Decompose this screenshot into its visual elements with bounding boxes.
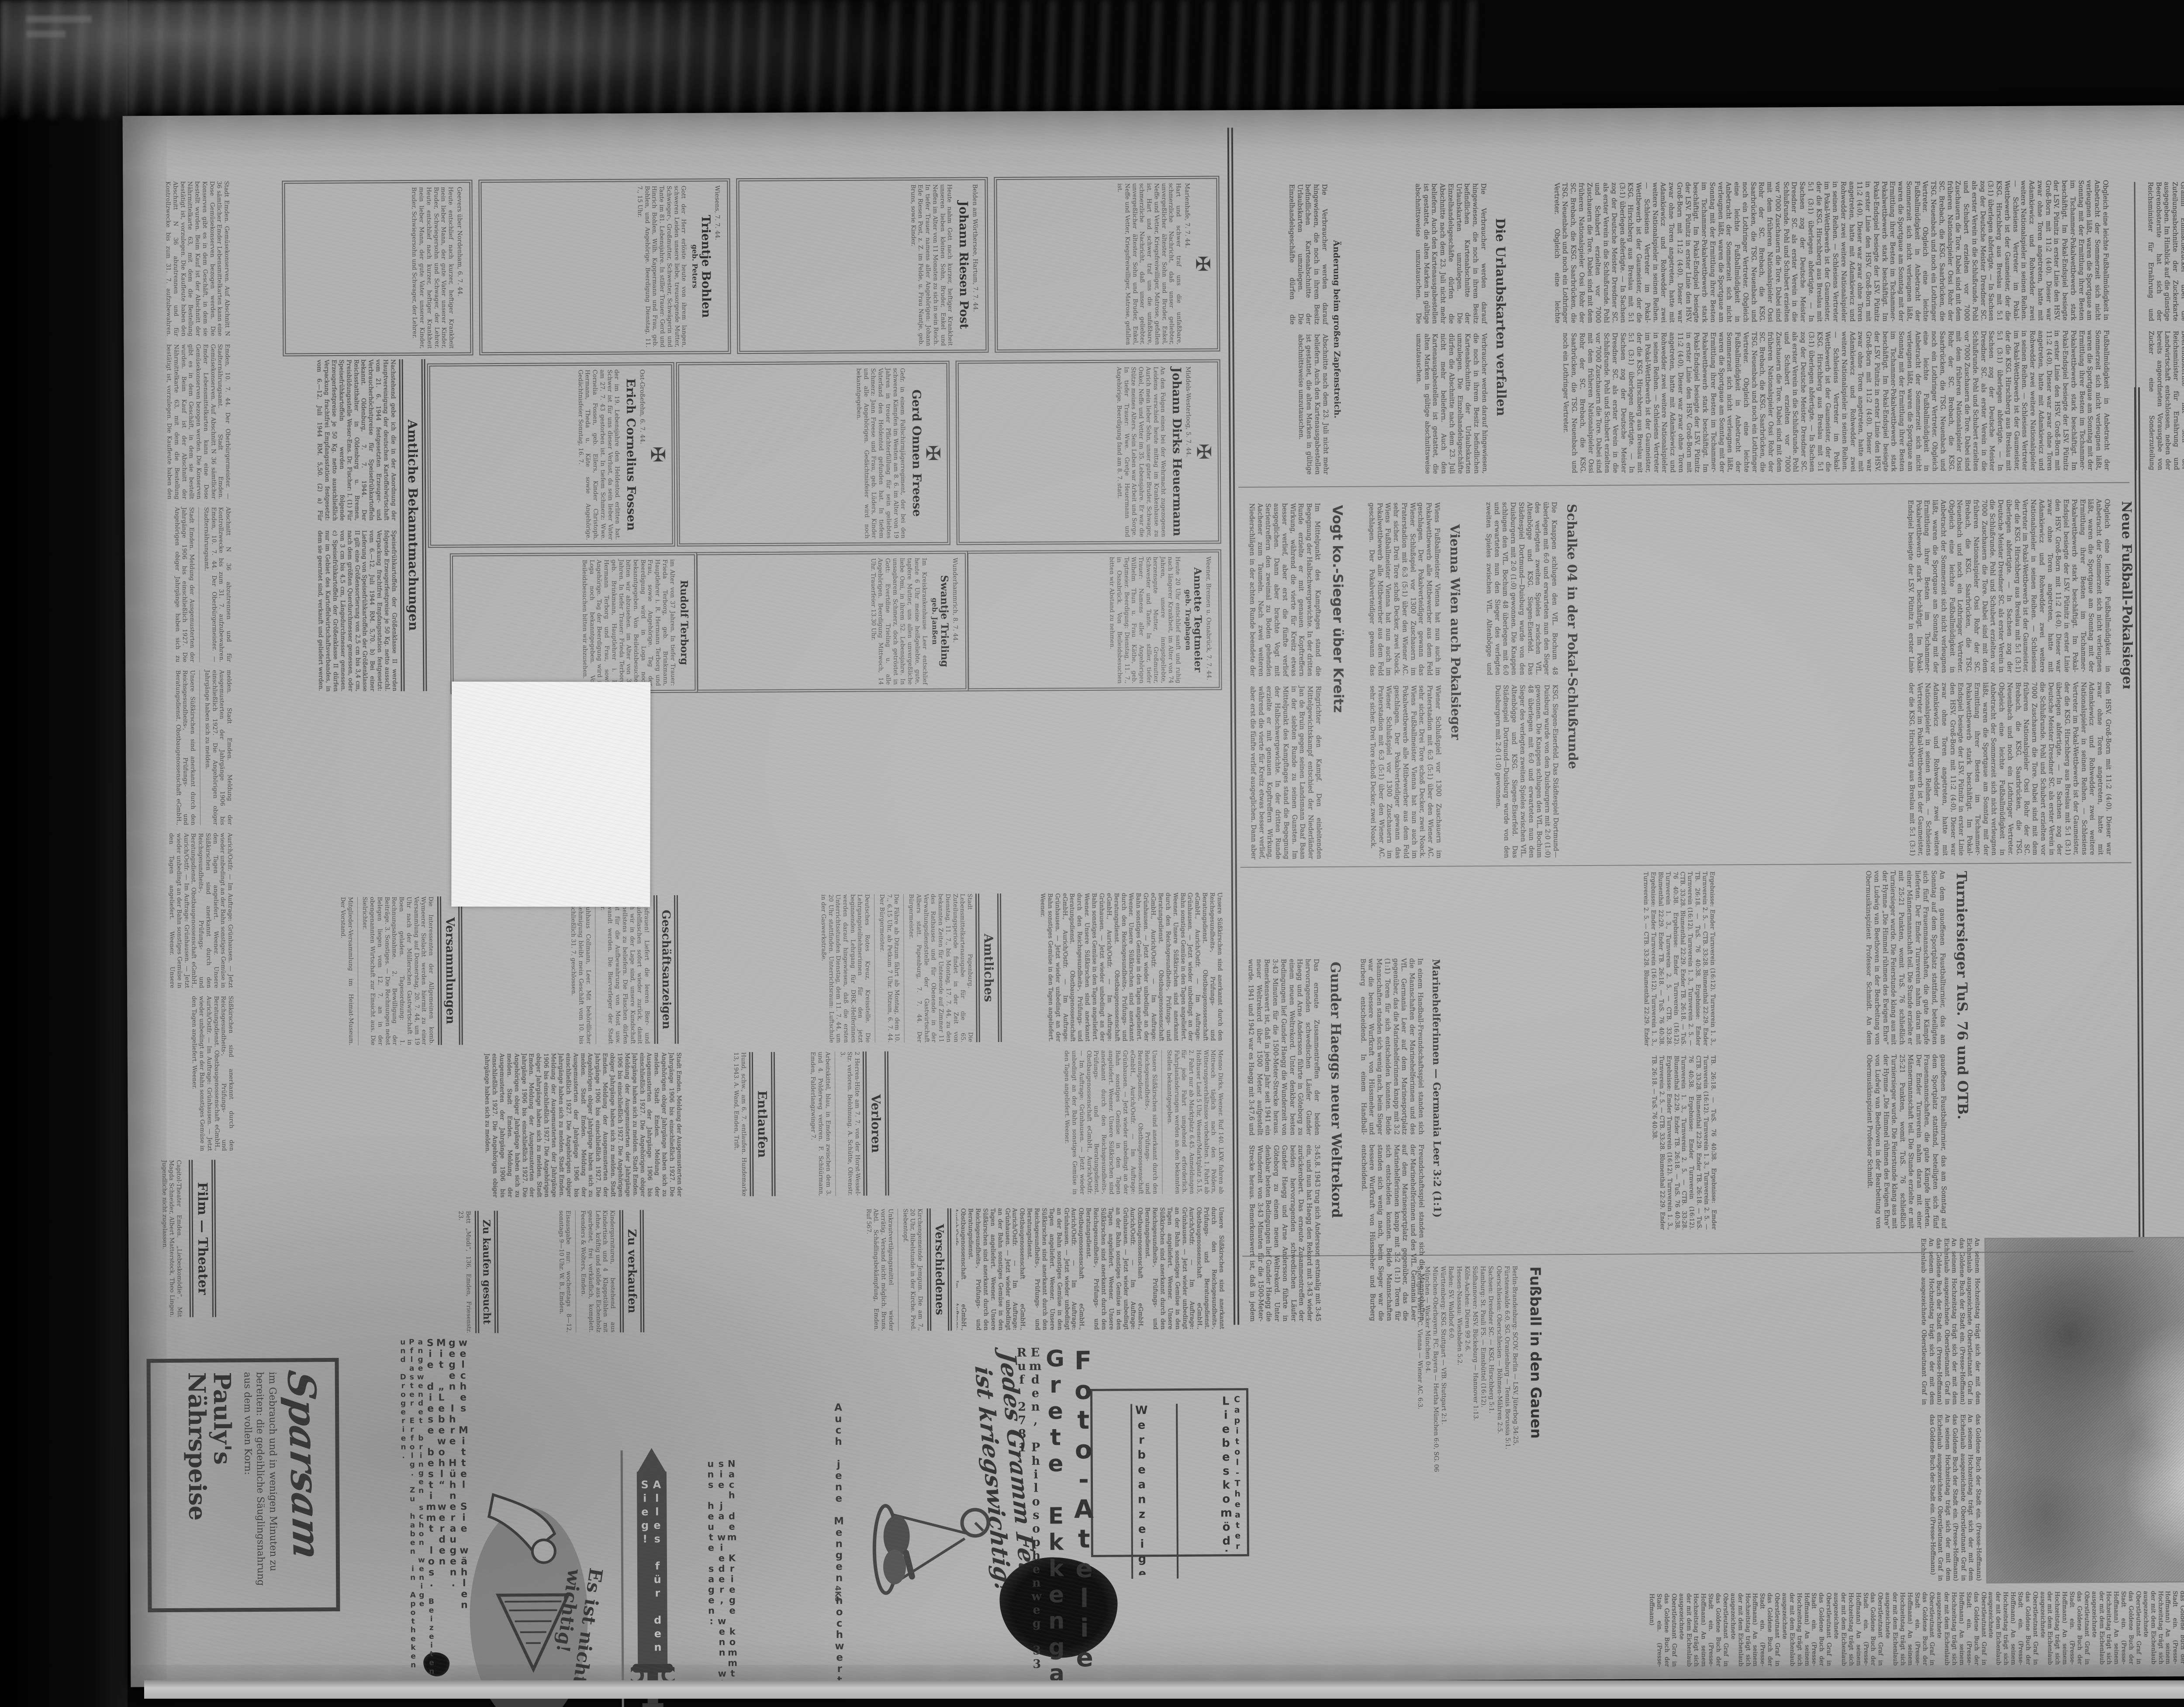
result-line: Württemberg: KSG. Stuttgart — VfB. Stutt… <box>1439 1266 1448 1487</box>
wedding-caption: An seinem Hochzeitstag trägt sich der mi… <box>1911 1238 1982 1581</box>
headline-vienna: Vienna Wien auch Pokalsieger <box>1448 524 1464 786</box>
headline-schalke: Schalke 04 in der Pokal-Schlußrunde <box>1564 504 1580 783</box>
death-notice: Geevers über Nordenham, 6. 7. 44. Heute … <box>282 180 473 356</box>
official-announcements: Amtliche Bekanntmachungen Nachstehend ge… <box>233 359 427 692</box>
scanned-newspaper-screenshot: Fünfhundert Gramm Einmachezucker Im Hinb… <box>0 0 2184 1707</box>
headline-neue-pokalsieger: Neue Fußball-Pokalsieger <box>2118 501 2135 689</box>
ad-capitol-line2: Liebeskomödie <box>1219 1395 1233 1553</box>
classified-entry: Schuhhaus Collmann, Leer. Mit behördlich… <box>570 896 596 1044</box>
classified-entry: 2 Herren-Hüte am 7. 7. von der Horst-Wes… <box>839 1052 861 1196</box>
section-geschaefts-entries: Hausfrauen! Liefert die leeren Bier- und… <box>467 895 651 1045</box>
notice-name: Gerd Onnen Freese <box>909 368 923 538</box>
result-line: Hessen-Nassau: Wiesbaden 5:2. <box>1455 1266 1464 1487</box>
ad-rule <box>621 1451 625 1707</box>
section-header-amtliches: Amtliches <box>975 893 1002 1042</box>
ad-fett-subline: Auch jene Mengen hochwert. <box>821 1402 846 1704</box>
classified-entry: Kirchengemeinde Jemgum. Die am 7., 20 Uh… <box>902 1208 924 1331</box>
notice-place: Wunderhammrich, 8. 7. 44. <box>951 558 959 685</box>
notice-text: An den Folgen eines bei der Wehrmacht zu… <box>1115 367 1167 537</box>
ad-foto-atelier: Foto-Atelier Grete Ekkenga Emden, Philos… <box>1010 1346 1099 1707</box>
notice-name: Johann Dirks Heuermann <box>1170 367 1184 537</box>
death-notice: ✠ Ost-Großefehn, 6. 7. 44. Erich Corneli… <box>427 362 675 548</box>
notice-text: im Alter von 37 Jahren. In tiefer Trauer… <box>581 559 676 686</box>
ad-foto-line2: Grete Ekkenga <box>1042 1346 1070 1686</box>
result-line: Köln-Aachen: Düren 99 2:6. <box>1463 1266 1472 1486</box>
scanner-light-streaks <box>0 0 1485 118</box>
results-gauen: Berlin-Brandenburg: SCOV. Berlin — LSV. … <box>1245 1266 1520 1488</box>
newspaper-sheet: Fünfhundert Gramm Einmachezucker Im Hinb… <box>123 104 2184 1687</box>
classified-entry: Arbeitskittel, blau, in Emden zwischen d… <box>809 1052 836 1196</box>
section-versammlungen-entries: Die Interessenten der Allgemeinen komb. … <box>242 897 435 1046</box>
results-turner: Ergebnisse: Emder Turnverein (16:12). Tu… <box>1572 871 1717 1230</box>
hanging-scale-illustration <box>844 1496 1002 1598</box>
film-edge-mark <box>26 31 66 38</box>
body-neue-pokalsieger: Obgleich eine leichte Fußballmüdigkeit i… <box>1906 499 2113 856</box>
notice-place: Marienhafe, 7. 7. 44. <box>1183 183 1191 345</box>
section-header-verloren: Verloren <box>863 1051 889 1195</box>
ad-capitol-line1: Capitol-Theater, Emden <box>1232 1395 1243 1553</box>
notice-text: Heute entschlief nach kurzer, heftiger K… <box>410 187 455 349</box>
section-header-entlaufen: Entlaufen <box>749 1052 776 1196</box>
banner-rule <box>2134 387 2145 1318</box>
section-film-entries: Capitol-Theater Emden. „Liebeskomödie“. … <box>132 1160 183 1318</box>
notice-name: Trientje Bohlen <box>699 185 713 347</box>
classified-entry: Eisausgabe nur: wochentags 8—12, sonntag… <box>557 1210 577 1333</box>
notice-subname: geb. Peters <box>691 186 700 347</box>
article-einmachezucker: Fünfhundert Gramm Einmachezucker Im Hinb… <box>2134 181 2184 471</box>
headline-fussball-gauen: Fußball in den Gauen <box>1527 1267 1545 1481</box>
classified-entry: Bett „Mudi“, 136, Emden, Friesenstr. 23. <box>457 1211 472 1333</box>
section-header-zu-kaufen-gesucht: Zu kaufen gesucht <box>475 1211 498 1333</box>
ad-sparsam: Sparsam im Gebrauch und in wenigen Minut… <box>147 1358 340 1612</box>
section-header-geschaeftsanzeigen: Geschäftsanzeigen <box>653 895 679 1044</box>
result-line: Baden: SV. Waldhof 6:0. <box>1447 1266 1456 1487</box>
white-paper-patch <box>451 682 650 907</box>
section-amtliches-entries: Stadt Papenburg. Die Lebensmittelkartena… <box>683 893 974 1043</box>
section-banner: Sportdienst der OTZ <box>2145 493 2184 1320</box>
body-urlaubskarten-cont: Die Verbraucher werden darauf hingewiese… <box>1254 184 1330 475</box>
classified-col3-top: Unsere Süßkirschen sind anerkannt durch … <box>956 1207 1225 1330</box>
headline-urlaubskarten: Die Urlaubskarten verfallen <box>1493 218 1509 436</box>
article-urlaubskarten: Die Verbraucher werden darauf hingewiese… <box>1243 183 1489 475</box>
ad-foto-line3: Emden, Philosophenweg 33 <box>1028 1346 1044 1671</box>
ad-capitol-theater: Capitol-Theater, Emden Liebeskomödie <box>1090 1388 1249 1557</box>
section-verloren-entries: 2 Herren-Hüte am 7. 7. von der Horst-Wes… <box>780 1052 861 1196</box>
death-notice: ✠ Marienhafe, 7. 7. 44. Hart und schwer … <box>994 176 1220 353</box>
next-page-edge <box>144 1680 2184 1699</box>
notice-place: Belden am Wörthersee, Hartum, 7. 7. 44. <box>971 184 979 346</box>
notice-subname: geb. Janßen <box>930 558 940 685</box>
result-line: Sportgau Wien: FC. Vienna — Wiener AC. 6… <box>1415 1266 1424 1487</box>
section-header-verschiedenes: Verschiedenes <box>927 1208 952 1331</box>
body-urlaubskarten: Die Verbraucher werden darauf hingewiese… <box>1343 183 1489 474</box>
ad-sparsam-script: Sparsam <box>279 1368 331 1602</box>
notice-name: Erich Cornelius Fossen <box>624 369 638 540</box>
column-rule <box>1238 482 2129 488</box>
death-notice: Wiesens, 7. 7. 44. Trientje Bohlen geb. … <box>478 178 731 355</box>
classified-entry: Deutsches Rotes Kreuz, Kreisstelle. Die … <box>819 894 875 1043</box>
notice-text: Heute nahm Gott nach kurzer, heftiger Kr… <box>909 184 954 346</box>
result-line: Südhannover: MSV. Bückeburg — Hannover 1… <box>1471 1266 1480 1486</box>
classified-entry: Hausfrauen! Liefert die leeren Bier- und… <box>599 895 651 1044</box>
notice-place: Geevers über Nordenham, 6. 7. 44. <box>456 187 463 348</box>
ad-alles-fuer-den-sieg: Es ist nicht wichtig! Alles für den Sieg… <box>467 1423 858 1707</box>
section-header-film-theater: Film — Theater <box>189 1160 216 1317</box>
body-vienna: Wiens Fußballmeister Vienna hat nun auch… <box>1348 502 1443 859</box>
notice-name: Rudolf Terborg <box>678 559 690 686</box>
ad-sparsam-body: im Gebrauch und in wenigen Minuten zu be… <box>241 1372 279 1598</box>
scanner-left-strip <box>0 0 128 1707</box>
notice-text: Heute 20 Uhr entschlief sanft und ruhig … <box>1108 557 1182 684</box>
body-neue-pokalsieger-cont: Obgleich eine leichte Fußballmüdigkeit i… <box>1515 180 2111 474</box>
ad-sieg-sword-text: Alles für den Sieg! <box>640 1478 664 1658</box>
death-notice: Rudolf Terborg im Alter von 37 Jahren. I… <box>450 552 698 694</box>
notice-text: Gefr. in einem Fallschirmjägerregiment, … <box>855 368 907 539</box>
headline-vogt: Vogt ko.-Sieger über Kreitz <box>1329 505 1347 802</box>
crosshead-zapfenstreich: Änderung beim großen Zapfenstreich. <box>1331 184 1342 474</box>
classified-entry: Mitglieder-Versammlung im Heimat-Museum.… <box>339 897 358 1046</box>
classified-entry: Unkrautvertilgungsmittel wieder vorrätig… <box>865 1208 898 1331</box>
section-header-versammlungen: Versammlungen <box>437 896 463 1045</box>
result-line: Oberschlesien: Oberschlesien — Böhmen-Mä… <box>1495 1266 1504 1486</box>
body-schalke: Die Knappen schlugen den VfL. Bochum 48 … <box>1469 502 1560 858</box>
iron-cross-icon: ✠ <box>1192 183 1212 344</box>
section-entlaufen-entries: Hund, schw., am 6. 7. entlaufen. Hundema… <box>690 1052 748 1197</box>
wedding-photo <box>1984 1236 2184 1584</box>
classified-col2-top: Menno Dirks, Weener. Ruf 140. LKW. fahre… <box>894 1049 1225 1195</box>
death-notice: Wunderhammrich, 8. 7. 44. Swantje Trieli… <box>695 551 969 692</box>
notice-place: Middels-Westerloog, 5. 7. 44. <box>1185 367 1192 537</box>
result-line: Berlin-Brandenburg: SCOV. Berlin — LSV. … <box>1503 1266 1520 1486</box>
section-divider-rule <box>1227 128 1239 1325</box>
body-vogt: Im Mittelpunkt des Kampftages stand die … <box>1241 503 1323 859</box>
death-notice: ✠ Gerd Onnen Freese Gefr. in einem Falls… <box>676 361 950 547</box>
classified-entry: Die Interessenten der Allgemeinen komb. … <box>361 897 435 1046</box>
section-gesucht-entries: Bett „Mudi“, 136, Emden, Friesenstr. 23. <box>424 1211 472 1333</box>
iron-cross-icon: ✠ <box>923 368 943 538</box>
section-header-amtliche-bekanntmachungen: Amtliche Bekanntmachungen <box>399 359 427 691</box>
ad-sparsam-brand2: Nährspeise <box>183 1372 212 1599</box>
ad-foto-line1: Foto-Atelier <box>1068 1346 1099 1702</box>
classified-filler: Unsere Süßkirschen sind anerkannt durch … <box>1063 1050 1162 1195</box>
column-rule <box>1241 862 2132 868</box>
notice-text: der im 19. Lebensjahre den Heldentod erl… <box>577 370 621 540</box>
notice-name: Johann Riesen Post <box>957 184 971 346</box>
notice-place: Wiesens, 7. 7. 44. <box>713 185 721 347</box>
result-line: München-Oberbayern: FC. Bayern — Hertha … <box>1423 1266 1440 1487</box>
iron-cross-icon: ✠ <box>647 369 667 540</box>
section-verkaufen-entries: Kindergarnituren, bestehend aus Kinderti… <box>502 1210 616 1333</box>
classified-entry: Menno Dirks, Weener. Ruf 140. LKW. fahre… <box>1165 1049 1225 1194</box>
result-line: Hamburg: St. Pauli FS. — Eimsbüttel (16:… <box>1479 1266 1488 1486</box>
classified-entry: Hund, schw., am 6. 7. entlaufen. Hundema… <box>732 1052 747 1196</box>
ad-foto-line4: Ruf 2781 <box>1015 1346 1029 1454</box>
ad-sieg-intro: Nach dem Kriege kommt sie ja wieder, wen… <box>680 1458 738 1704</box>
classified-entry: Stadt Papenburg. Die Lebensmittelkartena… <box>907 893 974 1042</box>
notice-place: Weener, Bremen u. Osnabrück, 7. 7. 44. <box>1205 556 1213 683</box>
notice-name: Swantje Trieling <box>939 558 950 685</box>
headline-turniersieger: Turniersieger TuS. 76 und OTB. <box>1953 871 1972 1181</box>
ad-lebewohl: welches Mittel Sie wählen gegen Ihre Hüh… <box>370 1337 470 1679</box>
classified-entry: Die Fähre ab Ditzum fährt ab Montag, dem… <box>878 894 905 1042</box>
ad-lebewohl-line: Sie diese bestimmt los. <box>425 1338 437 1589</box>
classified-entry: Capitol-Theater Emden. „Liebeskomödie“. … <box>160 1160 183 1317</box>
bottom-columns: Stadt Emden. Gemüsekonserven. Auf Abschn… <box>127 181 235 1151</box>
notice-text: Hart und schwer traf uns die unfaßbare, … <box>1116 183 1183 345</box>
official-body: Nachstehend gebe ich die in der Anordnun… <box>239 359 398 692</box>
wedding-article-column: An seinem Hochzeitstag trägt sich der mi… <box>1548 1590 2184 1668</box>
headline-haegg: Gunder Haeggs neuer Weltrekord <box>1327 962 1344 1241</box>
death-notice: Belden am Wörthersee, Hartum, 7. 7. 44. … <box>736 177 988 354</box>
sword-icon: Alles für den Sieg! <box>630 1448 675 1707</box>
notice-name: Annette Tegtmeier <box>1192 557 1204 683</box>
notice-place: Ost-Großefehn, 6. 7. 44. <box>639 369 646 540</box>
section-header-zu-verkaufen: Zu verkaufen <box>619 1210 644 1332</box>
section-verschiedenes-entries: Kirchengemeinde Jemgum. Die am 7., 20 Uh… <box>792 1208 924 1332</box>
ad-lebewohl-line: Mit „Lebewohl“ werden <box>435 1338 448 1567</box>
death-notice: ✠ Middels-Westerloog, 5. 7. 44. Johann D… <box>956 359 1221 545</box>
classified-col2-bottom: Stadt Emden. Meldung der Ausgemusterten … <box>245 1053 683 1199</box>
notice-text: Gott der Herr erlöste heute von ihrem la… <box>636 186 688 348</box>
ad-fett: Jedes Gramm Fett ist kriegswichtig! 4Ks <box>830 1352 1032 1604</box>
classified-entry: Kindergarnituren, bestehend aus Kinderti… <box>579 1210 616 1333</box>
result-line: Sachsen: Dresdner SC. — KSG. Hirschberg … <box>1487 1266 1496 1486</box>
film-edge-mark <box>26 16 92 23</box>
classified-filler: Unsere Süßkirschen sind anerkannt durch … <box>1007 892 1224 1042</box>
notice-subname: geb. Traphagen <box>1184 557 1193 683</box>
notice-text: Im Kreiskrankenhause Leer entschlief heu… <box>869 558 928 685</box>
ad-sparsam-brand1: Pauly's <box>208 1372 238 1598</box>
death-notice: Weener, Bremen u. Osnabrück, 7. 7. 44. A… <box>965 549 1222 691</box>
body-einmachezucker: Im Hinblick auf die günstige Beerenobste… <box>2141 181 2184 471</box>
ad-lebewohl-line: gegen Ihre Hühneraugen. <box>446 1338 459 1589</box>
body-turniersieger: An dem gauoffenen Faustballturnier, das … <box>1719 870 1948 1230</box>
iron-cross-icon: ✠ <box>1193 366 1213 537</box>
